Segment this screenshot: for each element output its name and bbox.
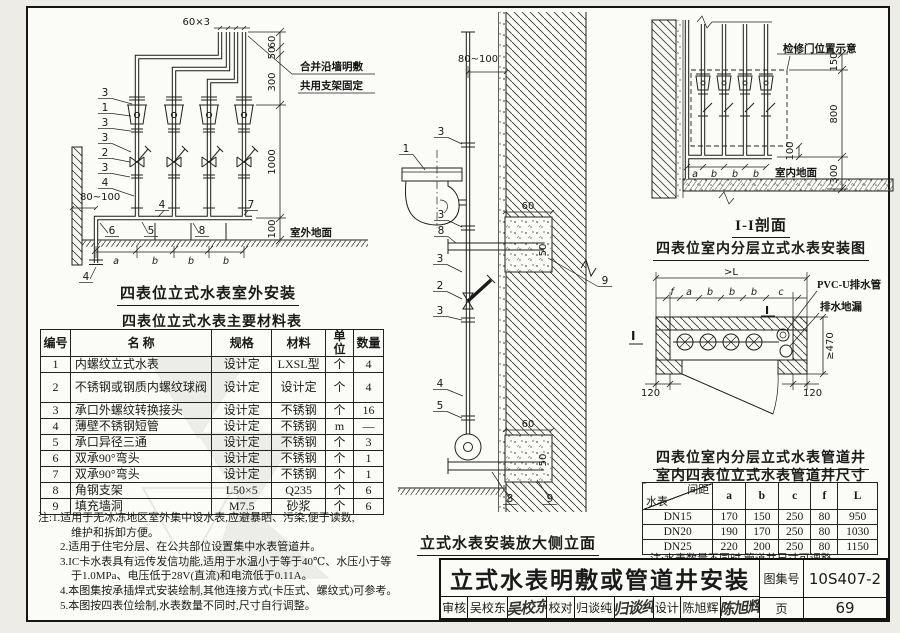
- drawing-title: 立式水表明敷或管道井安装: [441, 560, 759, 597]
- dim-80-100-label: 80~100: [80, 192, 120, 203]
- callout-4: 4: [102, 177, 109, 189]
- role-label-checker: 校对: [547, 597, 574, 618]
- table-row: 3承口外螺纹转换接头设计定不锈钢个16: [41, 403, 384, 419]
- table-row: 8角钢支架L50×5Q235个6: [41, 483, 384, 499]
- svg-text:I: I: [631, 329, 635, 343]
- table-row: 2不锈钢或钢质内螺纹球阀设计定设计定个4: [41, 373, 384, 403]
- size-table: 间距 水表 a b c f L DN15 170 150 250 80 950 …: [642, 482, 878, 555]
- note-line: 维护和拆卸方便。: [38, 526, 418, 541]
- dim-80-100-label: 80~100: [458, 54, 498, 65]
- dim-300: 300: [267, 72, 278, 91]
- materials-table: 编号 名 称 规格 材料 单位 数量 1内螺纹立式水表设计定LXSL型个4 2不…: [40, 329, 384, 515]
- callout-8: 8: [199, 225, 206, 237]
- svg-text:3: 3: [438, 126, 445, 138]
- pipes: [687, 16, 772, 204]
- svg-text:3: 3: [437, 253, 444, 265]
- atlas-page: { "page": { "paper": "#fbfbf7", "ink": "…: [0, 0, 900, 633]
- dim-300: 300: [829, 164, 840, 183]
- diag-bottom-label: 水表: [646, 496, 668, 508]
- svg-text:a: a: [686, 287, 692, 298]
- svg-text:b: b: [753, 169, 759, 180]
- col-id: 编号: [41, 330, 71, 357]
- door-leaf: [682, 374, 773, 414]
- svg-text:c: c: [778, 287, 784, 298]
- dim-100: 100: [785, 141, 796, 160]
- annotation-line1: 合并沿墙明敷: [299, 60, 363, 73]
- page-number-label: 页: [760, 598, 804, 618]
- col-unit: 单位: [326, 330, 354, 357]
- dim-470: ≥470: [807, 314, 836, 377]
- callout-1: 1: [102, 102, 109, 114]
- riser-pipe: [461, 32, 475, 434]
- hole-dim-60: 60: [522, 201, 535, 212]
- section-subtitle: 四表位室内分层立式水表安装图: [627, 238, 895, 261]
- callout-6: 6: [109, 225, 116, 237]
- note-line: 于1.0MPa、电压低于28V(直流)和电流低于0.11A。: [38, 569, 418, 584]
- dim-120-right: 120: [782, 374, 822, 399]
- hole2-dim-60: 60: [522, 419, 535, 430]
- elevation-caption: 立式水表安装放大侧立面: [396, 532, 620, 556]
- outdoor-installation-diagram: 60×3 合并沿墙明敷 共用支架固定 60 50 300 1000 100 80…: [34, 12, 378, 306]
- table-row: 7双承90°弯头设计定不锈钢个1: [41, 467, 384, 483]
- diag-top-label: 间距: [687, 484, 709, 496]
- note-line: 4.本图集按承插焊式安装绘制,其他连接方式(卡压式、螺纹式)可参考。: [38, 584, 418, 599]
- floor-slab: [683, 179, 893, 191]
- general-notes: 注:1.适用于无冰冻地区室外集中设水表,应避暴晒、污染,便于读数, 维护和拆卸方…: [38, 511, 418, 613]
- floor-drain-label: 排水地漏: [820, 300, 862, 313]
- side-elevation-diagram: 60 50 60 50 80~100: [392, 10, 620, 526]
- svg-text:3: 3: [437, 305, 444, 317]
- dim-120-left: 120: [641, 374, 681, 399]
- indoor-ground-label: 室内地面: [775, 166, 817, 179]
- page-number-value: 69: [804, 598, 886, 618]
- outdoor-caption-text: 四表位立式水表室外安装: [117, 282, 299, 306]
- wall-hole-upper: 60 50: [503, 201, 554, 272]
- wall-hatch: [652, 20, 683, 198]
- callout-3c: 3: [102, 132, 109, 144]
- spacing-b1: b: [152, 256, 158, 267]
- size-header-row: 间距 水表 a b c f L: [643, 483, 878, 510]
- spacing-b3: b: [223, 256, 229, 267]
- page-number-row: 页 69: [760, 598, 886, 618]
- dim-120-left-label: 120: [641, 388, 660, 399]
- note-line: 5.本图按四表位绘制,水表数量不同时,尺寸自行调整。: [38, 599, 418, 614]
- role-label-reviewer: 审核: [441, 597, 468, 618]
- outdoor-ground-label: 室外地面: [290, 226, 332, 239]
- dim-60: 60: [267, 36, 278, 49]
- table-row: 6双承90°弯头设计定不锈钢个1: [41, 451, 384, 467]
- shaft-dims-top: >L f a b b b c: [653, 267, 810, 317]
- diagonal-header: 间距 水表: [643, 483, 713, 510]
- atlas-number-value: 10S407-2: [804, 560, 886, 597]
- checker-name: 归谈纯: [575, 597, 615, 618]
- outdoor-diagram-caption: 四表位立式水表室外安装: [38, 282, 378, 306]
- col-qty: 数量: [354, 330, 384, 357]
- callout-2: 2: [102, 147, 109, 159]
- svg-text:b: b: [707, 287, 713, 298]
- svg-text:a: a: [692, 169, 698, 180]
- note-line: 注:1.适用于无冰冻地区室外集中设水表,应避暴晒、污染,便于读数,: [38, 511, 418, 526]
- svg-text:8: 8: [438, 225, 445, 237]
- callout-5: 5: [148, 225, 155, 237]
- floor-drain: [780, 345, 792, 357]
- svg-text:b: b: [751, 287, 757, 298]
- elevation-caption-text: 立式水表安装放大侧立面: [417, 532, 599, 556]
- section-caption-text: I-I剖面: [732, 214, 790, 238]
- annotation-line2: 共用支架固定: [300, 79, 363, 92]
- note-line: 2.适用于住宅分层、在公共部位设置集中水表管道井。: [38, 540, 418, 555]
- callouts-left: 3 1 3 3 2 3 4: [98, 87, 134, 196]
- col-material: 材料: [272, 330, 326, 357]
- water-meter-profile: [402, 150, 466, 228]
- col-name: 名 称: [70, 330, 211, 357]
- spacing-a: a: [113, 256, 119, 267]
- role-label-designer: 设计: [654, 597, 681, 618]
- dim-800: 800: [829, 104, 840, 123]
- svg-text:5: 5: [437, 400, 444, 412]
- section-ii-diagram: 检修门位置示意 150 800 300 100 a b b b 室内地面: [627, 12, 895, 212]
- svg-text:9: 9: [602, 275, 609, 287]
- dim-470-label: ≥470: [825, 332, 836, 359]
- spacing-dims: a b b b: [92, 246, 248, 267]
- page-frame: 60×3 合并沿墙明敷 共用支架固定 60 50 300 1000 100 80…: [26, 6, 890, 622]
- svg-text:1: 1: [403, 143, 410, 155]
- atlas-number-label: 图集号: [760, 560, 804, 597]
- callout-3b: 3: [102, 117, 109, 129]
- materials-header-row: 编号 名 称 规格 材料 单位 数量: [41, 330, 384, 357]
- dim-total-L: >L: [724, 267, 738, 278]
- section-caption: I-I剖面: [627, 214, 895, 238]
- meter-row: [673, 329, 792, 357]
- materials-table-title: 四表位立式水表主要材料表: [40, 311, 384, 331]
- access-door-note: 检修门位置示意: [783, 42, 857, 55]
- table-row: DN15 170 150 250 80 950: [643, 510, 878, 525]
- table-row: 5承口异径三通设计定不锈钢个3: [41, 435, 384, 451]
- dim-120-right-label: 120: [803, 388, 822, 399]
- dim-50: 50: [267, 47, 278, 60]
- svg-text:b: b: [729, 287, 735, 298]
- callout-7: 7: [248, 199, 255, 211]
- dim-60x3: 60×3: [183, 17, 250, 30]
- col-spec: 规格: [212, 330, 272, 357]
- ground-line: [82, 240, 368, 247]
- right-dimension-chain: 60 50 300 1000 100: [248, 28, 286, 244]
- atlas-number-row: 图集号 10S407-2: [760, 560, 886, 598]
- svg-text:b: b: [732, 169, 738, 180]
- pipe-shaft-plan: >L f a b b b c I I ≥470: [627, 264, 895, 446]
- designer-name: 陈旭辉: [681, 597, 721, 618]
- floor-line: [398, 488, 506, 495]
- section-subtitle-text: 四表位室内分层立式水表安装图: [653, 238, 869, 261]
- access-door-annotation: 检修门位置示意: [783, 42, 857, 70]
- pvc-pipe-label: PVC-U排水管: [817, 278, 882, 291]
- dim-100: 100: [267, 219, 278, 238]
- svg-text:4: 4: [437, 378, 444, 390]
- pvc-drain-pipe: [777, 329, 789, 341]
- dim-1000: 1000: [267, 149, 278, 174]
- dim-150: 150: [829, 52, 840, 71]
- svg-text:f: f: [670, 287, 675, 298]
- dim-60x3-label: 60×3: [183, 17, 210, 28]
- title-block-people-row: 审核 吴校东 吴校东 校对 归谈纯 归谈纯 设计 陈旭辉 陈旭辉: [441, 597, 759, 618]
- callout-3d: 3: [102, 162, 109, 174]
- svg-text:3: 3: [438, 209, 445, 221]
- title-block-left: 立式水表明敷或管道井安装 审核 吴校东 吴校东 校对 归谈纯 归谈纯 设计 陈旭…: [441, 560, 760, 618]
- hole2-dim-50: 50: [538, 454, 549, 467]
- svg-text:I: I: [765, 304, 769, 317]
- callout-4-main: 4: [159, 199, 166, 211]
- meters-and-valves: [696, 74, 775, 116]
- svg-text:b: b: [711, 169, 717, 180]
- title-block: 立式水表明敷或管道井安装 审核 吴校东 吴校东 校对 归谈纯 归谈纯 设计 陈旭…: [439, 558, 888, 620]
- callout-3: 3: [102, 87, 109, 99]
- reviewer-signature: 吴校东: [508, 597, 547, 618]
- table-row: 1内螺纹立式水表设计定LXSL型个4: [41, 357, 384, 373]
- shaft-walls: [656, 317, 807, 414]
- svg-text:2: 2: [437, 280, 444, 292]
- reviewer-name: 吴校东: [468, 597, 508, 618]
- spacing-dims: a b b b: [684, 164, 769, 180]
- designer-signature: 陈旭辉: [721, 597, 759, 618]
- spacing-b2: b: [188, 256, 194, 267]
- checker-signature: 归谈纯: [615, 597, 654, 618]
- title-block-right: 图集号 10S407-2 页 69: [760, 560, 886, 618]
- note-line: 3.IC卡水表具有远传发信功能,适用于水温小于等于40℃、水压小于等: [38, 555, 418, 570]
- table-row: 4薄壁不锈钢短管设计定不锈钢m—: [41, 419, 384, 435]
- table-row: DN20 190 170 250 80 1030: [643, 525, 878, 540]
